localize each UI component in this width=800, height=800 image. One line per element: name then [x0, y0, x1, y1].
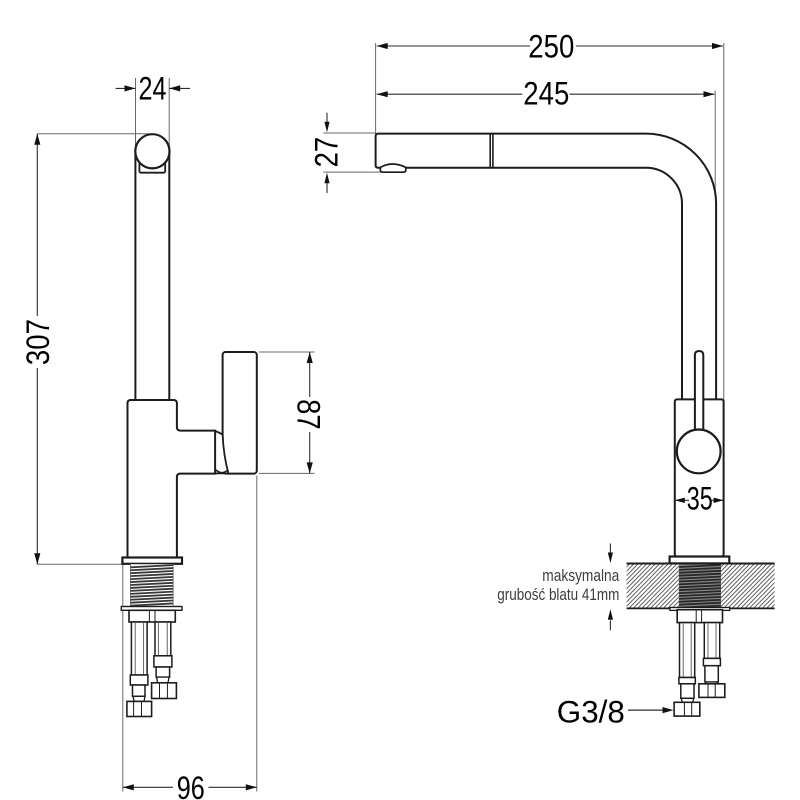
svg-text:307: 307 [20, 319, 56, 365]
svg-text:24: 24 [139, 70, 167, 106]
svg-text:250: 250 [528, 28, 574, 64]
svg-text:245: 245 [523, 75, 569, 111]
svg-text:35: 35 [687, 481, 713, 517]
svg-text:87: 87 [291, 399, 327, 430]
svg-text:96: 96 [177, 770, 205, 800]
svg-text:27: 27 [309, 137, 345, 168]
svg-text:maksymalna: maksymalna [542, 567, 620, 585]
svg-text:G3/8: G3/8 [557, 694, 625, 730]
svg-text:grubość blatu 41mm: grubość blatu 41mm [497, 586, 619, 604]
